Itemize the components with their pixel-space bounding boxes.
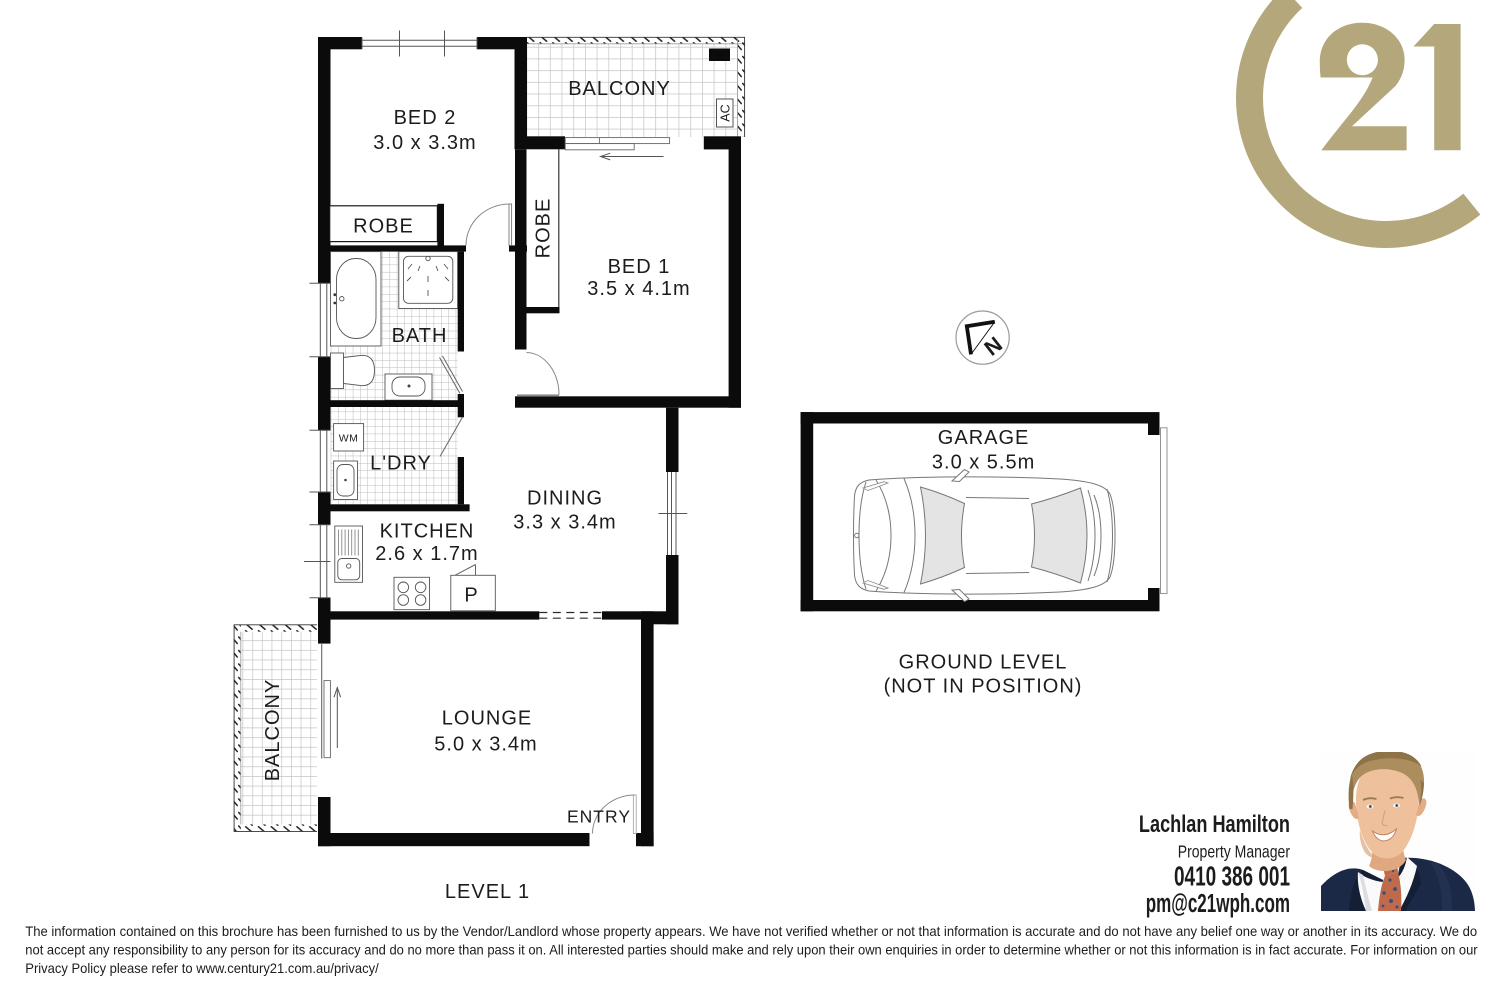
svg-text:Property Manager: Property Manager [1178, 842, 1291, 862]
svg-text:BED 2: BED 2 [394, 107, 457, 129]
svg-text:3.3 x 3.4m: 3.3 x 3.4m [513, 512, 616, 534]
svg-text:DINING: DINING [527, 488, 603, 510]
svg-text:BATH: BATH [392, 325, 448, 347]
svg-text:2.6 x 1.7m: 2.6 x 1.7m [375, 543, 478, 565]
svg-text:3.0 x 5.5m: 3.0 x 5.5m [932, 452, 1035, 474]
svg-text:ROBE: ROBE [533, 198, 555, 259]
svg-text:not accept any responsibility: not accept any responsibility to any per… [25, 942, 1478, 958]
svg-text:5.0 x 3.4m: 5.0 x 3.4m [434, 734, 537, 756]
svg-text:Lachlan Hamilton: Lachlan Hamilton [1139, 809, 1290, 837]
svg-text:LEVEL 1: LEVEL 1 [445, 881, 530, 903]
svg-text:3.5 x 4.1m: 3.5 x 4.1m [587, 278, 690, 300]
svg-text:ENTRY: ENTRY [567, 807, 631, 827]
svg-text:WM: WM [339, 433, 359, 445]
svg-text:GARAGE: GARAGE [938, 427, 1030, 449]
svg-text:AC: AC [718, 104, 732, 121]
svg-text:KITCHEN: KITCHEN [380, 521, 475, 543]
svg-text:LOUNGE: LOUNGE [442, 708, 532, 730]
svg-text:pm@c21wph.com: pm@c21wph.com [1146, 888, 1290, 918]
svg-text:BALCONY: BALCONY [262, 679, 284, 782]
svg-text:The information contained on t: The information contained on this brochu… [25, 924, 1477, 940]
svg-text:Privacy Policy please refer to: Privacy Policy please refer to www.centu… [25, 960, 379, 976]
svg-text:P: P [464, 585, 478, 607]
svg-text:BALCONY: BALCONY [568, 78, 671, 100]
svg-text:L'DRY: L'DRY [370, 453, 432, 475]
svg-text:GROUND LEVEL: GROUND LEVEL [899, 652, 1068, 674]
svg-text:(NOT IN POSITION): (NOT IN POSITION) [884, 676, 1083, 698]
svg-text:ROBE: ROBE [353, 216, 414, 238]
svg-text:3.0 x 3.3m: 3.0 x 3.3m [373, 132, 476, 154]
svg-text:BED 1: BED 1 [608, 256, 671, 278]
